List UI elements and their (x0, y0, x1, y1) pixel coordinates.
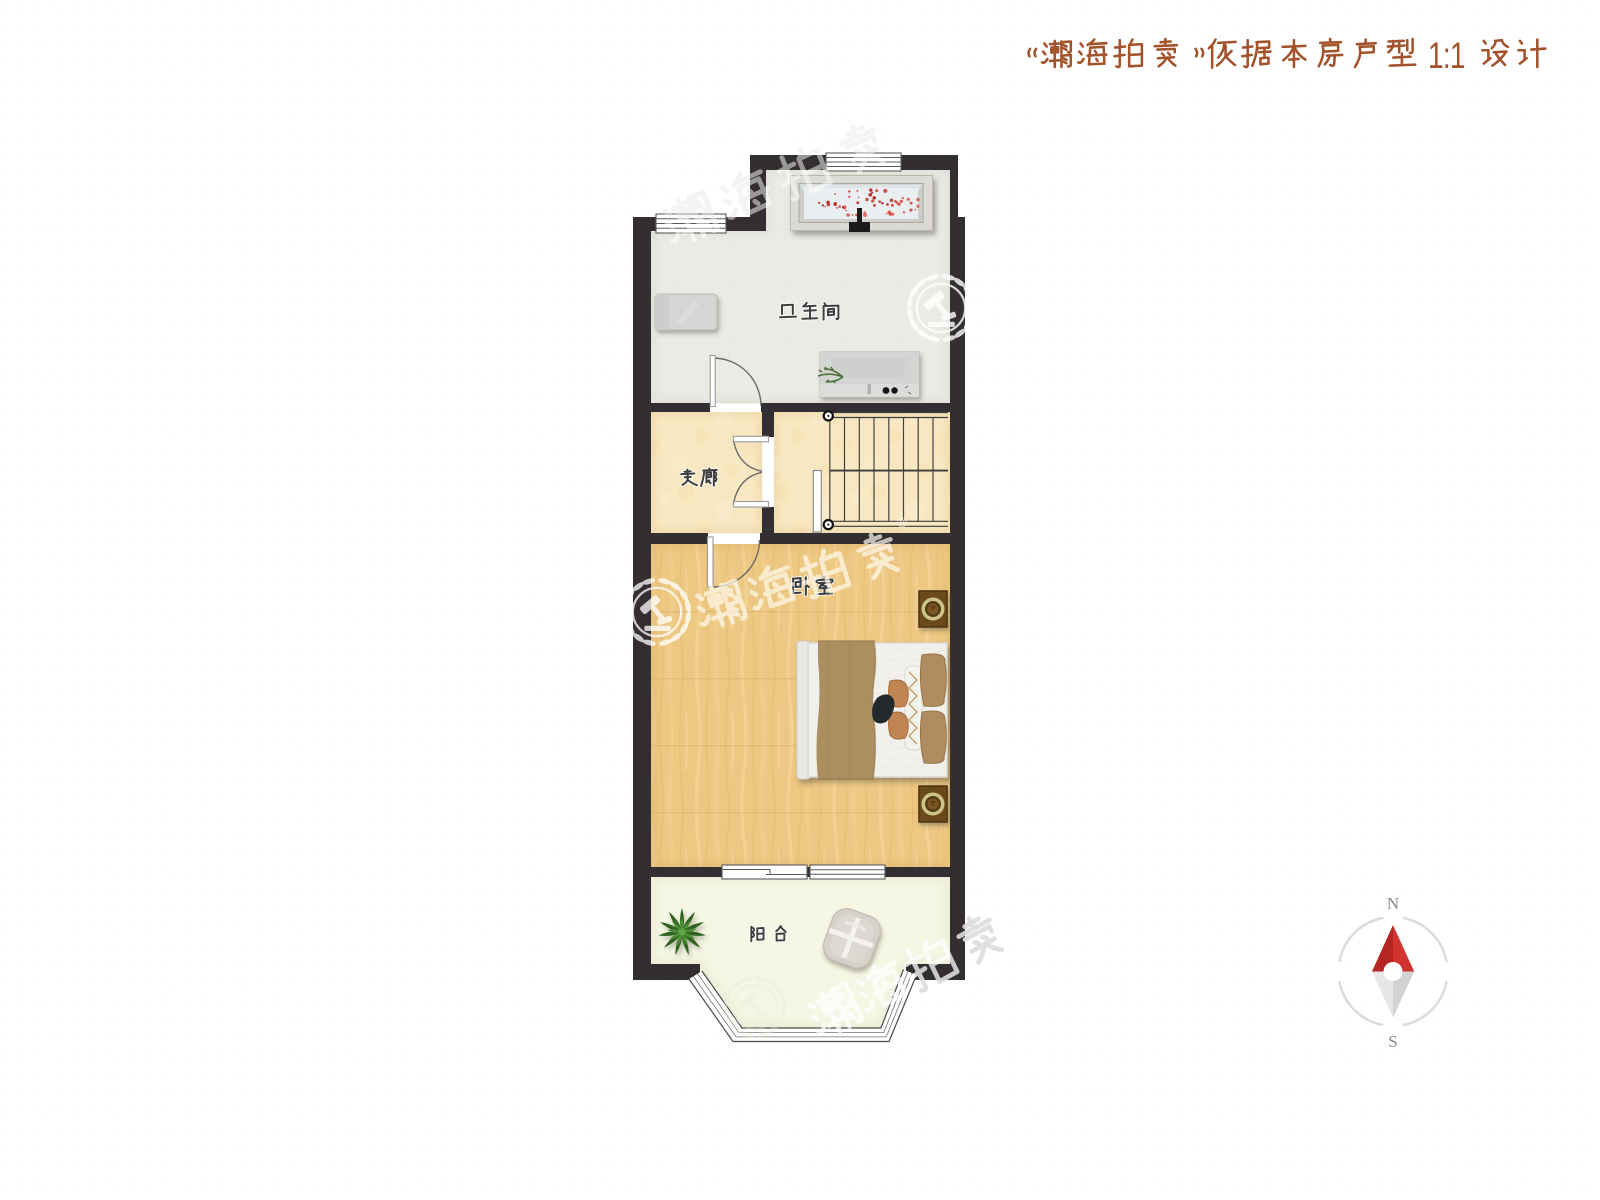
svg-text:N: N (1387, 894, 1399, 913)
svg-text:®: ® (897, 514, 908, 530)
svg-text:S: S (1388, 1032, 1397, 1051)
svg-text:1:1: 1:1 (1428, 34, 1465, 76)
